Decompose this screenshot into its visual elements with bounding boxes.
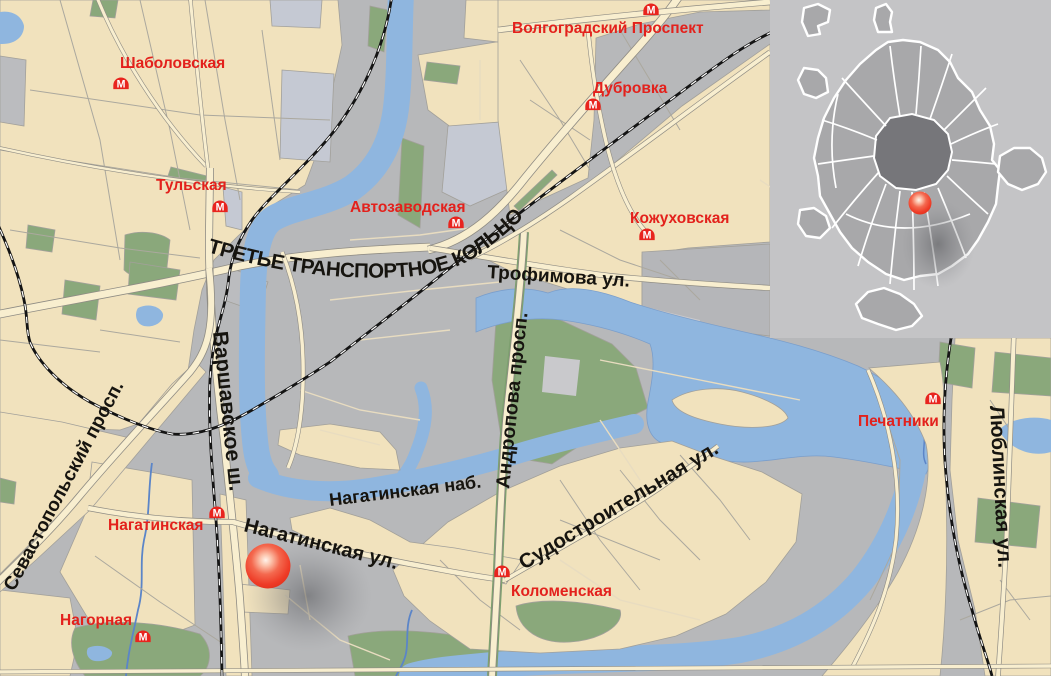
svg-text:Волгоградский Проспект: Волгоградский Проспект bbox=[512, 20, 704, 37]
svg-text:Нагатинская: Нагатинская bbox=[108, 517, 203, 534]
svg-text:Шаболовская: Шаболовская bbox=[120, 55, 225, 72]
svg-text:Коломенская: Коломенская bbox=[511, 583, 612, 600]
svg-text:Нагорная: Нагорная bbox=[60, 612, 132, 629]
svg-text:Автозаводская: Автозаводская bbox=[350, 199, 466, 216]
svg-text:Печатники: Печатники bbox=[858, 413, 939, 430]
svg-text:Кожуховская: Кожуховская bbox=[630, 210, 729, 227]
svg-text:Тульская: Тульская bbox=[156, 177, 227, 194]
svg-text:Дубровка: Дубровка bbox=[593, 80, 668, 97]
